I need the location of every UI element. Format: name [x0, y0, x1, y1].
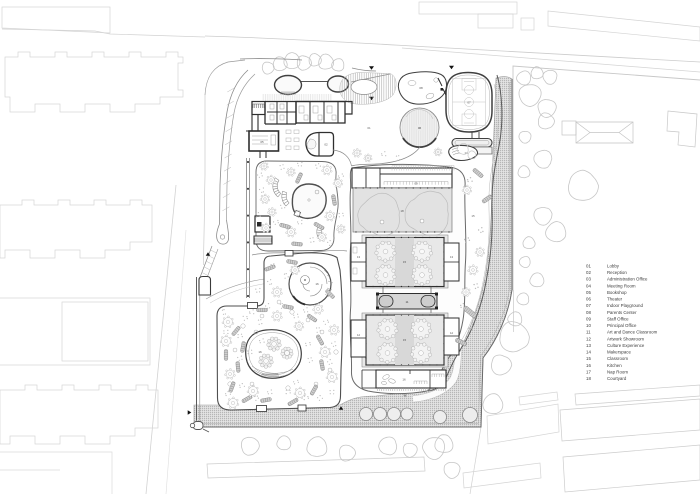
svg-text:07: 07 [467, 101, 471, 105]
svg-text:16: 16 [402, 378, 406, 382]
svg-text:08: 08 [419, 86, 423, 90]
svg-text:Courtyard: Courtyard [607, 376, 627, 381]
svg-text:09: 09 [414, 182, 418, 186]
svg-text:15: 15 [471, 214, 475, 218]
svg-text:11: 11 [586, 330, 591, 335]
svg-text:Art and Dance Classroom: Art and Dance Classroom [607, 330, 658, 335]
svg-text:16: 16 [586, 363, 591, 368]
svg-text:09: 09 [586, 317, 591, 322]
svg-text:02: 02 [586, 270, 591, 275]
svg-text:08: 08 [586, 310, 591, 315]
svg-text:Staff Office: Staff Office [607, 317, 629, 322]
svg-text:01: 01 [586, 264, 591, 269]
svg-text:13: 13 [586, 343, 591, 348]
svg-text:03: 03 [586, 277, 591, 282]
svg-text:05: 05 [260, 140, 264, 144]
svg-text:Indoor Playground: Indoor Playground [607, 303, 643, 308]
svg-text:Meeting Room: Meeting Room [607, 283, 636, 288]
svg-text:Parents Center: Parents Center [607, 310, 637, 315]
svg-text:Theater: Theater [607, 297, 623, 302]
svg-text:16: 16 [258, 350, 262, 354]
svg-text:04: 04 [586, 283, 591, 288]
svg-text:18: 18 [400, 209, 404, 213]
svg-text:01: 01 [367, 126, 371, 130]
svg-text:10: 10 [586, 323, 591, 328]
svg-text:17: 17 [586, 369, 591, 374]
svg-text:Makerspace: Makerspace [607, 350, 631, 355]
svg-text:Culture Experience: Culture Experience [607, 343, 645, 348]
svg-text:12: 12 [450, 331, 454, 335]
svg-text:15: 15 [586, 356, 591, 361]
svg-text:Reception: Reception [607, 270, 627, 275]
svg-text:12: 12 [586, 336, 591, 341]
svg-text:15: 15 [403, 338, 407, 342]
svg-text:Kitchen: Kitchen [607, 363, 622, 368]
svg-text:16: 16 [315, 282, 319, 286]
svg-text:15: 15 [403, 260, 407, 264]
svg-text:Bookshop: Bookshop [607, 290, 627, 295]
svg-text:12: 12 [357, 333, 361, 337]
svg-text:Administration Office: Administration Office [607, 277, 648, 282]
svg-text:05: 05 [586, 290, 591, 295]
svg-text:06: 06 [586, 297, 591, 302]
svg-text:Principal Office: Principal Office [607, 323, 637, 328]
svg-text:06: 06 [418, 126, 422, 130]
svg-text:Lobby: Lobby [607, 264, 620, 269]
svg-text:13: 13 [450, 255, 454, 259]
svg-text:Nap Room: Nap Room [607, 369, 628, 374]
svg-text:02: 02 [324, 143, 328, 147]
svg-text:Classroom: Classroom [607, 356, 628, 361]
svg-text:07: 07 [586, 303, 591, 308]
svg-text:14: 14 [586, 350, 591, 355]
svg-text:11: 11 [405, 300, 408, 304]
svg-text:13: 13 [357, 255, 361, 259]
svg-text:Artwork Showroom: Artwork Showroom [607, 336, 644, 341]
svg-text:18: 18 [586, 376, 591, 381]
